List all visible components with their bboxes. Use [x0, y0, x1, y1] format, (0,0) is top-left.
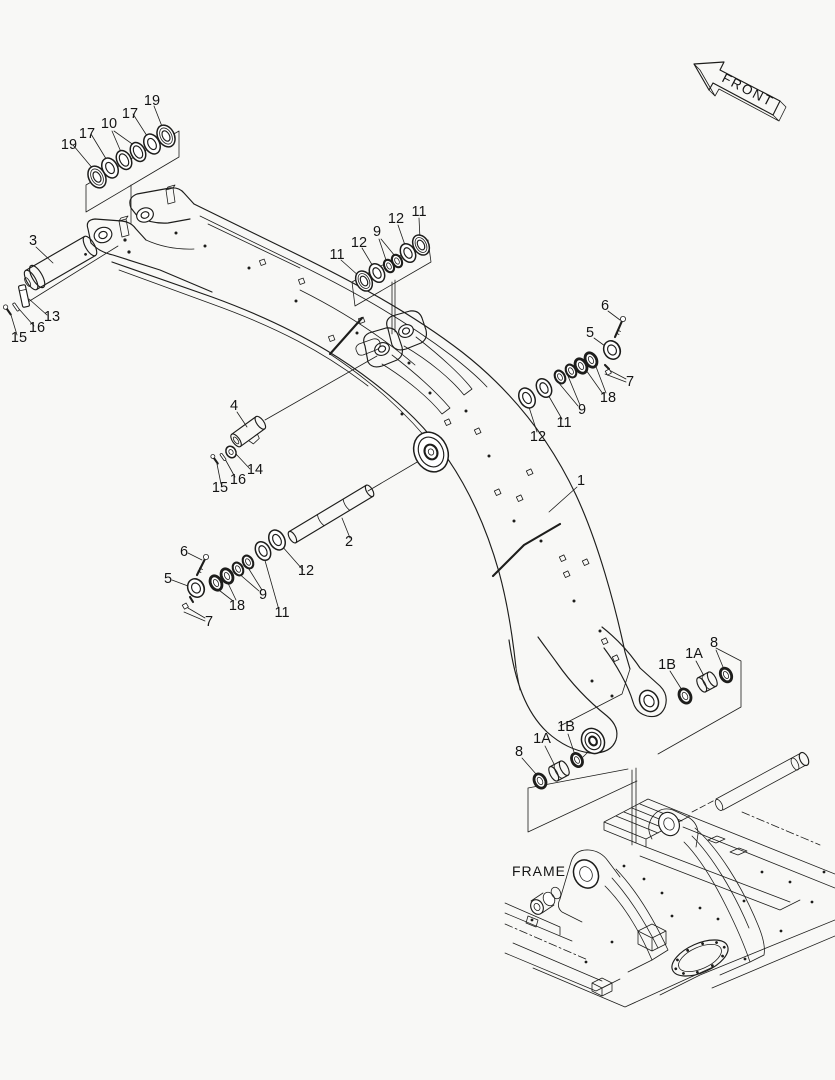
- callout-3: 3: [29, 233, 37, 249]
- pin-retainer: [600, 338, 623, 362]
- leader-lines: [11, 106, 723, 774]
- callout-1b: 1B: [658, 657, 676, 673]
- lock-bits: [605, 365, 611, 375]
- bushing-1a: [695, 670, 719, 693]
- callout-5: 5: [164, 571, 172, 587]
- shim-set-boom-foot: [84, 122, 178, 191]
- retainer-bolt: [197, 554, 209, 575]
- bushing-1a: [547, 759, 571, 782]
- callout-11: 11: [411, 204, 426, 220]
- frame-pin: [692, 751, 811, 812]
- callout-8: 8: [710, 635, 718, 651]
- callout-15: 15: [11, 330, 27, 346]
- callout-7: 7: [205, 614, 213, 630]
- callout-19: 19: [144, 93, 160, 109]
- swing-flange: [667, 933, 734, 984]
- callout-12: 12: [351, 235, 367, 251]
- callout-2: 2: [345, 534, 353, 550]
- callout-14: 14: [247, 462, 263, 478]
- callout-13: 13: [44, 309, 60, 325]
- tip-bushing-set-right: [677, 666, 734, 705]
- callout-12: 12: [388, 211, 404, 227]
- callout-1b: 1B: [557, 719, 575, 735]
- callout-12: 12: [298, 563, 314, 579]
- callout-16: 16: [230, 472, 246, 488]
- callout-1: 1: [577, 473, 585, 489]
- positioning-pin: [210, 415, 271, 465]
- callout-1a: 1A: [533, 731, 551, 747]
- callout-17: 17: [79, 126, 95, 142]
- callout-1a: 1A: [685, 646, 703, 662]
- lock-bits: [182, 597, 193, 609]
- retainer-bolt: [615, 316, 626, 337]
- pin-lock-parts-left: [2, 285, 29, 316]
- callout-9: 9: [259, 587, 267, 603]
- frame-inset: FRAME: [505, 751, 835, 1007]
- exploded-view-drawing: FRONT: [0, 0, 835, 1080]
- callout-11: 11: [556, 415, 571, 431]
- callout-19: 19: [61, 137, 77, 153]
- pin-retainer: [184, 576, 207, 600]
- front-arrow-label: FRONT: [720, 70, 777, 109]
- callout-16: 16: [29, 320, 45, 336]
- callout-17: 17: [122, 106, 138, 122]
- pivot-boss: [407, 426, 455, 477]
- callout-11: 11: [329, 247, 344, 263]
- callout-9: 9: [373, 224, 381, 240]
- callout-5: 5: [586, 325, 594, 341]
- callout-10: 10: [101, 116, 117, 132]
- callout-18: 18: [229, 598, 245, 614]
- callout-6: 6: [601, 298, 609, 314]
- callout-9: 9: [578, 402, 586, 418]
- parts-diagram: FRONT: [0, 0, 835, 1080]
- callout-6: 6: [180, 544, 188, 560]
- callout-12: 12: [530, 429, 546, 445]
- callout-15: 15: [212, 480, 228, 496]
- bolt-dots: [175, 232, 614, 698]
- callout-4: 4: [230, 398, 238, 414]
- cylinder-pin: [287, 484, 376, 545]
- callout-7: 7: [626, 374, 634, 390]
- tip-bushing-set-left: [532, 751, 585, 790]
- frame-label: FRAME: [512, 863, 566, 879]
- front-arrow: FRONT: [694, 62, 786, 121]
- callout-18: 18: [600, 390, 616, 406]
- seal-kit-left: [182, 527, 288, 609]
- callout-11: 11: [274, 605, 289, 621]
- callout-8: 8: [515, 744, 523, 760]
